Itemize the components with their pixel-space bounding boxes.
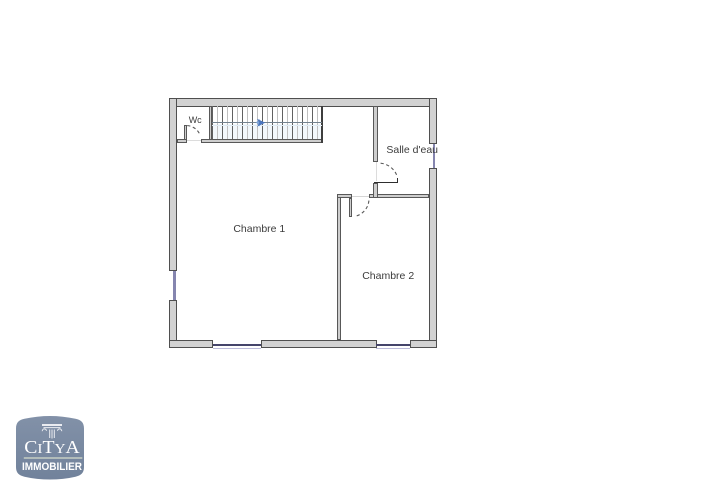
svg-text:CITYA: CITYA	[24, 437, 80, 457]
svg-text:IMMOBILIER: IMMOBILIER	[22, 461, 82, 473]
